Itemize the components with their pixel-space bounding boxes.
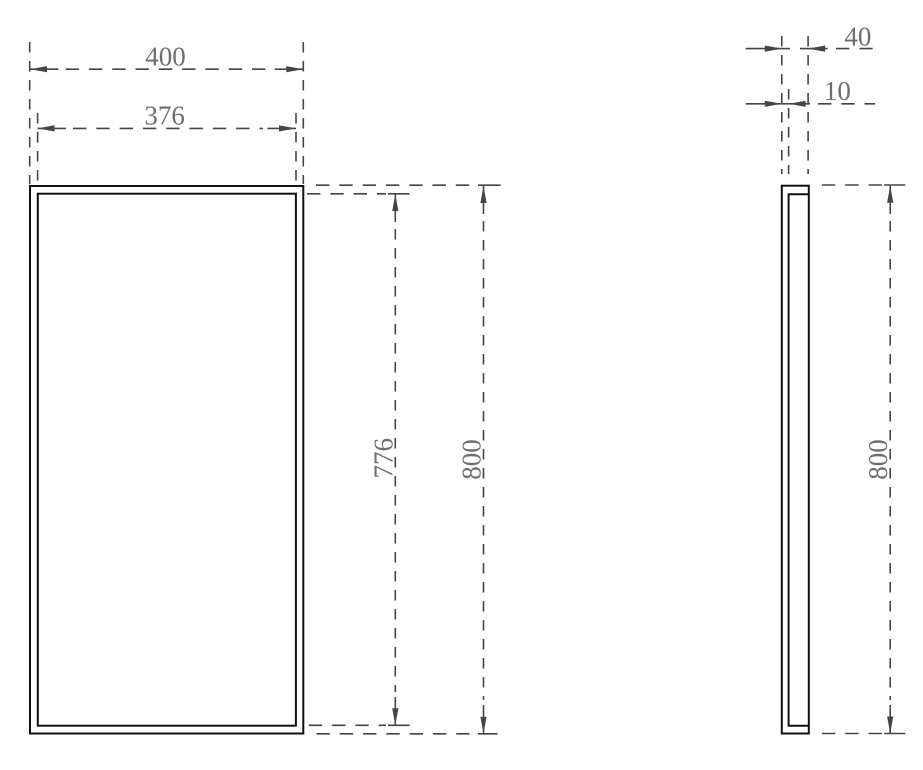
svg-text:776: 776	[368, 438, 398, 479]
svg-text:376: 376	[144, 101, 185, 131]
svg-text:400: 400	[145, 41, 186, 71]
svg-text:40: 40	[844, 21, 871, 51]
svg-text:800: 800	[863, 439, 893, 480]
svg-text:800: 800	[457, 439, 487, 480]
svg-text:10: 10	[824, 76, 851, 106]
